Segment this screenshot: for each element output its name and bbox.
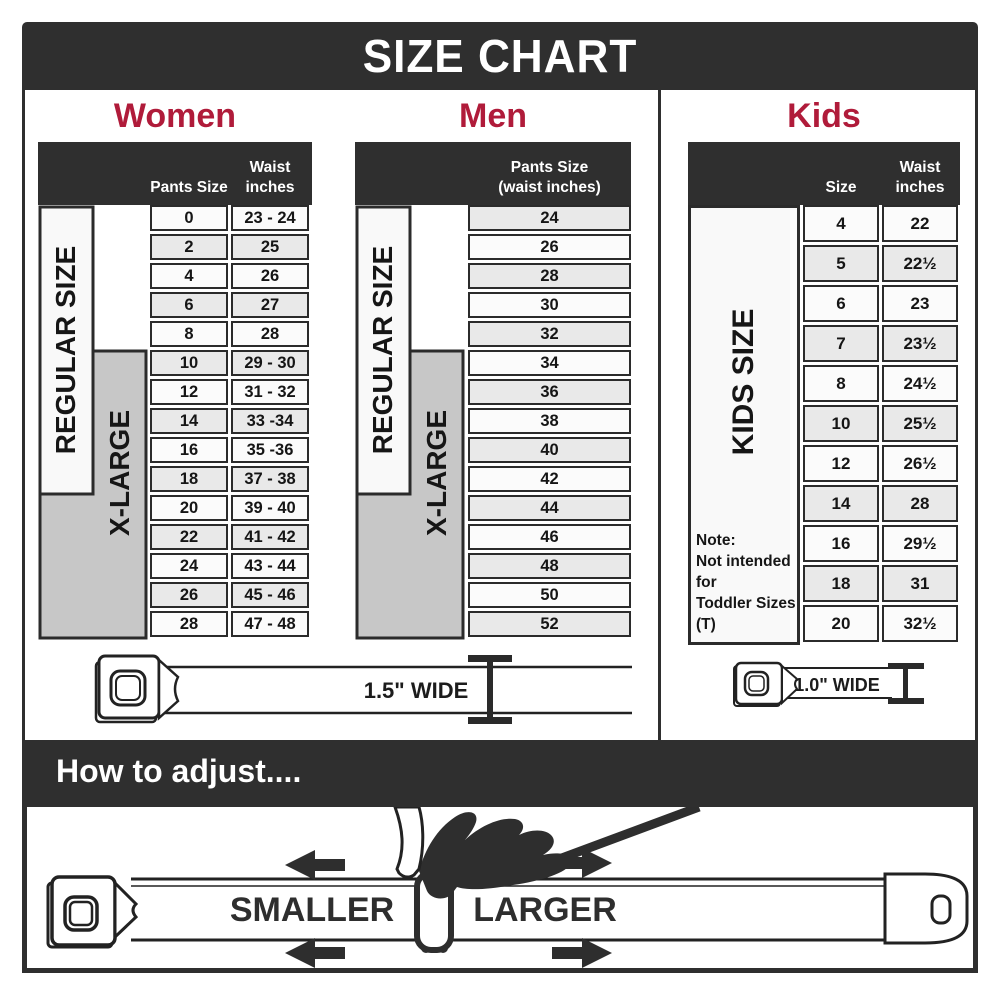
table-cell: 46 bbox=[468, 524, 631, 550]
kids-size-column: 45678101214161820 bbox=[803, 205, 879, 645]
kids-belt-width-label: 1.0" WIDE bbox=[794, 675, 880, 695]
table-cell: 34 bbox=[468, 350, 631, 376]
table-cell: 23 bbox=[882, 285, 958, 322]
women-waist-column: 23 - 242526272829 - 3031 - 3233 -3435 -3… bbox=[231, 205, 309, 640]
table-cell: 24½ bbox=[882, 365, 958, 402]
seatbelt-buckle-icon bbox=[48, 877, 136, 947]
men-table-header: Pants Size (waist inches) bbox=[355, 142, 631, 205]
adult-belt-width-label: 1.5" WIDE bbox=[364, 678, 469, 703]
table-cell: 30 bbox=[468, 292, 631, 318]
table-cell: 10 bbox=[803, 405, 879, 442]
table-cell: 35 -36 bbox=[231, 437, 309, 463]
table-cell: 22½ bbox=[882, 245, 958, 282]
table-cell: 36 bbox=[468, 379, 631, 405]
smaller-label: SMALLER bbox=[230, 891, 394, 929]
women-size-range-labels: REGULAR SIZE X-LARGE bbox=[38, 205, 148, 640]
table-cell: 28 bbox=[882, 485, 958, 522]
table-cell: 38 bbox=[468, 408, 631, 434]
size-chart-page: SIZE CHART Women Men Kids Pants Size Wai… bbox=[0, 0, 1000, 1000]
women-col2-header: Waist inches bbox=[231, 158, 309, 198]
table-cell: 28 bbox=[231, 321, 309, 347]
table-cell: 26 bbox=[231, 263, 309, 289]
women-regular-label: REGULAR SIZE bbox=[50, 246, 81, 454]
table-cell: 28 bbox=[468, 263, 631, 289]
table-cell: 12 bbox=[803, 445, 879, 482]
table-cell: 24 bbox=[150, 553, 228, 579]
table-cell: 8 bbox=[803, 365, 879, 402]
kids-col1-header: Size bbox=[803, 178, 879, 198]
table-cell: 41 - 42 bbox=[231, 524, 309, 550]
table-cell: 40 bbox=[468, 437, 631, 463]
arrow-left-icon bbox=[285, 938, 345, 968]
how-to-heading: How to adjust.... bbox=[22, 753, 301, 790]
table-cell: 6 bbox=[803, 285, 879, 322]
kids-size-label-box: KIDS SIZE Note: Not intended for Toddler… bbox=[688, 205, 800, 645]
women-heading: Women bbox=[38, 93, 312, 139]
table-cell: 4 bbox=[803, 205, 879, 242]
kids-belt-illustration: 1.0" WIDE bbox=[730, 660, 935, 710]
table-cell: 4 bbox=[150, 263, 228, 289]
belt-end-cap bbox=[885, 874, 967, 943]
table-cell: 27 bbox=[231, 292, 309, 318]
table-cell: 25½ bbox=[882, 405, 958, 442]
table-cell: 23½ bbox=[882, 325, 958, 362]
page-title: SIZE CHART bbox=[363, 29, 638, 83]
table-cell: 20 bbox=[803, 605, 879, 642]
women-xlarge-label: X-LARGE bbox=[104, 410, 135, 536]
table-cell: 22 bbox=[882, 205, 958, 242]
men-heading: Men bbox=[355, 93, 631, 139]
table-cell: 31 bbox=[882, 565, 958, 602]
width-measure-icon bbox=[888, 663, 924, 704]
kids-note: Note: Not intended for Toddler Sizes (T) bbox=[696, 531, 797, 636]
table-cell: 45 - 46 bbox=[231, 582, 309, 608]
table-cell: 26 bbox=[150, 582, 228, 608]
table-cell: 23 - 24 bbox=[231, 205, 309, 231]
table-cell: 24 bbox=[468, 205, 631, 231]
adjust-illustration: SMALLER LARGER bbox=[27, 807, 973, 968]
table-cell: 31 - 32 bbox=[231, 379, 309, 405]
adjust-illustration-box: SMALLER LARGER bbox=[22, 802, 978, 973]
table-cell: 18 bbox=[150, 466, 228, 492]
arrow-left-icon bbox=[285, 850, 345, 880]
seatbelt-buckle-icon bbox=[96, 656, 178, 722]
table-cell: 20 bbox=[150, 495, 228, 521]
left-frame-border bbox=[22, 90, 25, 740]
table-cell: 14 bbox=[150, 408, 228, 434]
table-cell: 29½ bbox=[882, 525, 958, 562]
table-cell: 52 bbox=[468, 611, 631, 637]
women-col1-header: Pants Size bbox=[150, 178, 228, 198]
kids-waist-column: 2222½2323½24½25½26½2829½3132½ bbox=[882, 205, 958, 645]
women-size-column: 0246810121416182022242628 bbox=[150, 205, 228, 640]
adult-belt-illustration: 1.5" WIDE bbox=[90, 646, 650, 730]
title-band: SIZE CHART bbox=[22, 22, 978, 90]
table-cell: 43 - 44 bbox=[231, 553, 309, 579]
table-cell: 2 bbox=[150, 234, 228, 260]
kids-heading: Kids bbox=[688, 93, 960, 139]
women-table-header: Pants Size Waist inches bbox=[38, 142, 312, 205]
table-cell: 32½ bbox=[882, 605, 958, 642]
table-cell: 50 bbox=[468, 582, 631, 608]
table-cell: 48 bbox=[468, 553, 631, 579]
table-cell: 10 bbox=[150, 350, 228, 376]
table-cell: 26 bbox=[468, 234, 631, 260]
table-cell: 42 bbox=[468, 466, 631, 492]
arrow-right-icon bbox=[552, 938, 612, 968]
table-cell: 7 bbox=[803, 325, 879, 362]
men-size-range-labels: REGULAR SIZE X-LARGE bbox=[355, 205, 465, 640]
table-cell: 12 bbox=[150, 379, 228, 405]
table-cell: 16 bbox=[150, 437, 228, 463]
right-frame-border bbox=[975, 90, 978, 740]
table-cell: 37 - 38 bbox=[231, 466, 309, 492]
table-cell: 0 bbox=[150, 205, 228, 231]
table-cell: 44 bbox=[468, 495, 631, 521]
men-regular-label: REGULAR SIZE bbox=[367, 246, 398, 454]
kids-col2-header: Waist inches bbox=[882, 158, 958, 198]
table-cell: 6 bbox=[150, 292, 228, 318]
table-cell: 8 bbox=[150, 321, 228, 347]
kids-table-header: Size Waist inches bbox=[688, 142, 960, 205]
how-to-band: How to adjust.... bbox=[22, 740, 978, 802]
table-cell: 25 bbox=[231, 234, 309, 260]
larger-label: LARGER bbox=[473, 891, 617, 929]
section-divider bbox=[658, 90, 661, 740]
men-col-header: Pants Size (waist inches) bbox=[468, 158, 631, 198]
kids-size-label: KIDS SIZE bbox=[727, 308, 761, 455]
table-cell: 14 bbox=[803, 485, 879, 522]
table-cell: 18 bbox=[803, 565, 879, 602]
men-xlarge-label: X-LARGE bbox=[421, 410, 452, 536]
table-cell: 16 bbox=[803, 525, 879, 562]
table-cell: 26½ bbox=[882, 445, 958, 482]
table-cell: 39 - 40 bbox=[231, 495, 309, 521]
table-cell: 28 bbox=[150, 611, 228, 637]
table-cell: 33 -34 bbox=[231, 408, 309, 434]
table-cell: 29 - 30 bbox=[231, 350, 309, 376]
arrow-right-icon bbox=[552, 848, 612, 878]
table-cell: 47 - 48 bbox=[231, 611, 309, 637]
table-cell: 22 bbox=[150, 524, 228, 550]
table-cell: 32 bbox=[468, 321, 631, 347]
men-size-column: 242628303234363840424446485052 bbox=[468, 205, 631, 640]
table-cell: 5 bbox=[803, 245, 879, 282]
